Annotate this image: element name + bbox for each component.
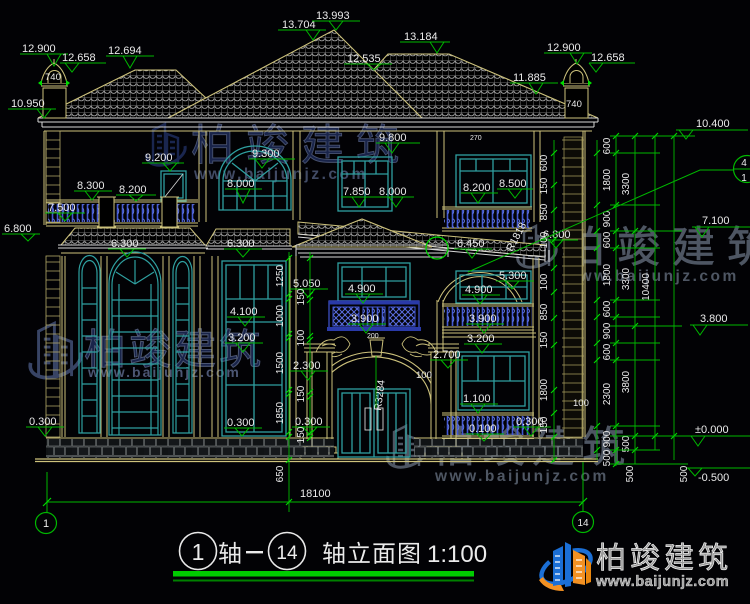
svg-text:18100: 18100 (300, 488, 331, 500)
svg-text:14: 14 (577, 518, 589, 529)
svg-text:1850: 1850 (275, 401, 286, 424)
svg-text:3.800: 3.800 (700, 313, 728, 325)
svg-text:7.100: 7.100 (702, 215, 730, 227)
svg-text:3.200: 3.200 (228, 332, 256, 344)
svg-text:0.100: 0.100 (469, 423, 497, 435)
svg-text:12.900: 12.900 (22, 43, 56, 55)
svg-text:8.200: 8.200 (119, 184, 147, 196)
svg-text:-0.500: -0.500 (698, 472, 729, 484)
svg-text:0.300: 0.300 (29, 416, 57, 428)
svg-text:7.500: 7.500 (48, 202, 76, 214)
svg-text:8.300: 8.300 (77, 180, 105, 192)
svg-text:150: 150 (539, 416, 550, 433)
svg-text:100: 100 (416, 370, 432, 381)
svg-text:11.885: 11.885 (513, 72, 546, 84)
svg-text:13.704: 13.704 (282, 19, 316, 31)
svg-text:10.400: 10.400 (696, 118, 730, 130)
svg-text:1: 1 (192, 539, 205, 565)
svg-text:1:100: 1:100 (427, 541, 487, 568)
svg-text:1.100: 1.100 (463, 393, 491, 405)
svg-text:150: 150 (539, 177, 550, 194)
svg-text:600: 600 (602, 137, 613, 154)
svg-text:3.900: 3.900 (351, 313, 379, 325)
svg-text:4.900: 4.900 (465, 284, 493, 296)
svg-text:3300: 3300 (621, 172, 632, 195)
svg-text:2.300: 2.300 (293, 360, 321, 372)
svg-text:6.300: 6.300 (227, 238, 255, 250)
svg-text:7.850: 7.850 (343, 186, 371, 198)
svg-text:1800: 1800 (539, 378, 550, 401)
svg-text:1000: 1000 (275, 304, 286, 327)
svg-text:5.050: 5.050 (293, 278, 321, 290)
svg-text:900: 900 (602, 322, 613, 339)
svg-text:±0.000: ±0.000 (695, 424, 729, 436)
svg-text:9.800: 9.800 (379, 132, 407, 144)
svg-text:1250: 1250 (275, 264, 286, 287)
svg-text:1: 1 (43, 518, 49, 530)
svg-text:600: 600 (602, 231, 613, 248)
svg-text:12.658: 12.658 (62, 52, 96, 64)
svg-text:12.658: 12.658 (591, 52, 625, 64)
svg-text:6.800: 6.800 (4, 223, 32, 235)
svg-text:12.694: 12.694 (108, 45, 142, 57)
svg-text:3800: 3800 (621, 370, 632, 393)
svg-text:600: 600 (602, 343, 613, 360)
svg-text:1800: 1800 (602, 263, 613, 286)
svg-text:3.900: 3.900 (469, 313, 497, 325)
svg-text:740: 740 (566, 99, 582, 110)
svg-text:3300: 3300 (621, 267, 632, 290)
svg-text:740: 740 (45, 72, 61, 83)
svg-text:500: 500 (625, 465, 636, 482)
svg-text:150: 150 (296, 426, 307, 443)
svg-text:270: 270 (470, 135, 482, 142)
svg-text:650: 650 (275, 465, 286, 482)
svg-text:9.300: 9.300 (252, 148, 280, 160)
svg-text:12.900: 12.900 (547, 42, 581, 54)
svg-text:600: 600 (539, 154, 550, 171)
svg-text:10400: 10400 (641, 273, 652, 301)
svg-text:13.993: 13.993 (316, 10, 350, 22)
svg-text:1800: 1800 (602, 168, 613, 191)
svg-text:0.300: 0.300 (227, 417, 255, 429)
svg-text:100: 100 (539, 273, 550, 290)
svg-text:850: 850 (539, 303, 550, 320)
svg-text:150: 150 (296, 288, 307, 305)
svg-text:150: 150 (296, 385, 307, 402)
svg-text:14: 14 (276, 543, 298, 564)
svg-text:8.500: 8.500 (499, 178, 527, 190)
svg-text:2.700: 2.700 (433, 349, 461, 361)
svg-text:4.100: 4.100 (230, 306, 258, 318)
svg-text:200: 200 (367, 333, 379, 340)
svg-text:6.450: 6.450 (457, 238, 485, 250)
svg-text:150: 150 (539, 331, 550, 348)
svg-text:2300: 2300 (602, 382, 613, 405)
svg-text:500: 500 (679, 465, 690, 482)
svg-text:1500: 1500 (275, 351, 286, 374)
svg-text:5.300: 5.300 (499, 270, 527, 282)
svg-text:600: 600 (602, 300, 613, 317)
svg-text:13.184: 13.184 (404, 31, 438, 43)
svg-text:1: 1 (741, 173, 747, 184)
svg-text:9.200: 9.200 (145, 152, 173, 164)
svg-text:900: 900 (602, 430, 613, 447)
svg-text:4: 4 (741, 158, 747, 169)
svg-text:100: 100 (296, 329, 307, 346)
svg-text:10.950: 10.950 (11, 98, 45, 110)
svg-text:8.000: 8.000 (379, 186, 407, 198)
svg-text:850: 850 (539, 203, 550, 220)
svg-text:100: 100 (573, 398, 589, 409)
svg-text:8.200: 8.200 (463, 182, 491, 194)
svg-text:12.535: 12.535 (347, 53, 381, 65)
svg-text:6.300: 6.300 (111, 238, 139, 250)
svg-text:3.200: 3.200 (467, 333, 495, 345)
svg-text:0.300: 0.300 (295, 416, 323, 428)
svg-text:8.000: 8.000 (227, 178, 255, 190)
svg-text:www.baijunjz.com: www.baijunjz.com (595, 574, 729, 590)
svg-text:4.900: 4.900 (348, 283, 376, 295)
